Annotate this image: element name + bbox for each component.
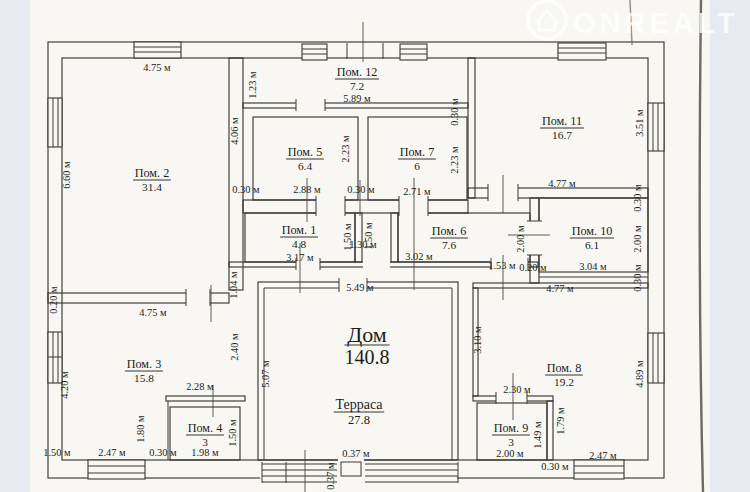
right-porch-steps (574, 460, 624, 479)
room-label: Пом. 11 (542, 114, 582, 128)
scanned-floor-plan-page: Пом. 231.4Пом. 127.2Пом. 56.4Пом. 76Пом.… (0, 0, 750, 492)
room-area-label: 31.4 (142, 181, 162, 193)
dim-label: 4.06 м (229, 117, 240, 145)
room-label: Пом. 2 (135, 166, 170, 180)
dim-label: 2.40 м (229, 333, 240, 361)
dim-label: 2.00 м (496, 448, 524, 459)
dim-label: 4.20 м (59, 371, 70, 399)
dim-label: 0.30 м (232, 184, 260, 195)
dim-label: 0.30 м (632, 184, 643, 212)
room-label: Пом. 6 (432, 224, 467, 238)
room-label: Пом. 10 (572, 224, 613, 238)
room-label: Пом. 9 (494, 421, 529, 435)
dim-label: 1.50 м (363, 222, 374, 250)
room-area-label: 140.8 (345, 346, 390, 368)
dim-label: 1.50 м (43, 447, 71, 458)
dim-label: 1.50 м (227, 419, 238, 447)
left-porch-steps (88, 460, 145, 479)
dim-label: 0.37 м (325, 462, 336, 490)
room-label: Пом. 12 (337, 65, 378, 79)
room-area-label: 16.7 (552, 129, 572, 141)
room-area-label: 3 (508, 436, 514, 448)
dim-label: 0.30 м (541, 461, 569, 472)
dim-label: 2.88 м (293, 184, 321, 195)
dim-label: 2.30 м (503, 384, 531, 395)
room-label: Пом. 5 (288, 145, 323, 159)
dim-label: 0.20 м (48, 286, 59, 314)
dim-label: 2.47 м (98, 447, 126, 458)
dim-label: 6.60 м (61, 161, 72, 189)
dim-label: 2.23 м (340, 135, 351, 163)
room-label: Пом. 1 (282, 223, 317, 237)
dim-label: 5.89 м (343, 93, 371, 104)
room-area-label: 27.8 (348, 413, 370, 427)
dim-label: 1.23 м (247, 71, 258, 99)
dim-label: 0.30 м (449, 98, 460, 126)
dim-label: 3.04 м (579, 261, 607, 272)
dim-label: 3.10 м (472, 326, 483, 354)
dim-label: 0.37 м (342, 448, 370, 459)
room-label: Пом. 7 (400, 145, 435, 159)
room-label: Пом. 8 (547, 361, 582, 375)
dim-label: 0.30 м (632, 264, 643, 292)
room-area-label: 6 (414, 160, 420, 172)
dim-label: 4.75 м (143, 62, 171, 73)
room-area-label: 4.8 (292, 238, 307, 250)
dim-label: 5.07 м (260, 360, 271, 388)
dim-label: 2.00 м (515, 225, 526, 253)
dim-label: 2.47 м (589, 450, 617, 461)
dim-label: 4.77 м (546, 283, 574, 294)
room-area-label: 7.2 (350, 80, 365, 92)
dim-label: 1.98 м (191, 447, 219, 458)
dim-label: 0.30 м (149, 447, 177, 458)
dim-label: 1.80 м (135, 415, 146, 443)
dim-label: 2.28 м (186, 381, 214, 392)
dim-label: 3.51 м (634, 109, 645, 137)
room-area-label: 15.8 (134, 372, 154, 384)
floor-plan-svg: Пом. 231.4Пом. 127.2Пом. 56.4Пом. 76Пом.… (0, 0, 750, 492)
dim-label: 3.17 м (286, 252, 314, 263)
watermark-text: ONREALT (573, 7, 739, 39)
room-label: Пом. 3 (127, 357, 162, 371)
dim-label: 2.00 м (632, 225, 643, 253)
dim-label: 0.20 м (519, 262, 547, 273)
dim-label: 4.89 м (634, 360, 645, 388)
room-label: Терраса (335, 397, 383, 412)
room-area-label: 7.6 (442, 239, 457, 251)
dim-label: 1.50 м (342, 223, 353, 251)
room-area-label: 6.1 (585, 239, 600, 251)
dim-label: 1.79 м (555, 407, 566, 435)
room-label: Дом (347, 322, 387, 347)
dim-label: 2.71 м (403, 186, 431, 197)
dim-label: 2.23 м (449, 146, 460, 174)
dim-label: 1.53 м (488, 260, 516, 271)
dim-label: 0.30 м (347, 184, 375, 195)
dim-label: 3.02 м (405, 251, 433, 262)
dim-label: 1.04 м (228, 271, 239, 299)
room-label: Пом. 4 (188, 421, 223, 435)
room-area-label: 19.2 (554, 376, 574, 388)
dim-label: 4.77 м (548, 178, 576, 189)
dim-label: 4.75 м (139, 307, 167, 318)
dim-label: 1.49 м (532, 421, 543, 449)
room-area-label: 6.4 (298, 160, 313, 172)
dim-label: 5.49 м (346, 282, 374, 293)
